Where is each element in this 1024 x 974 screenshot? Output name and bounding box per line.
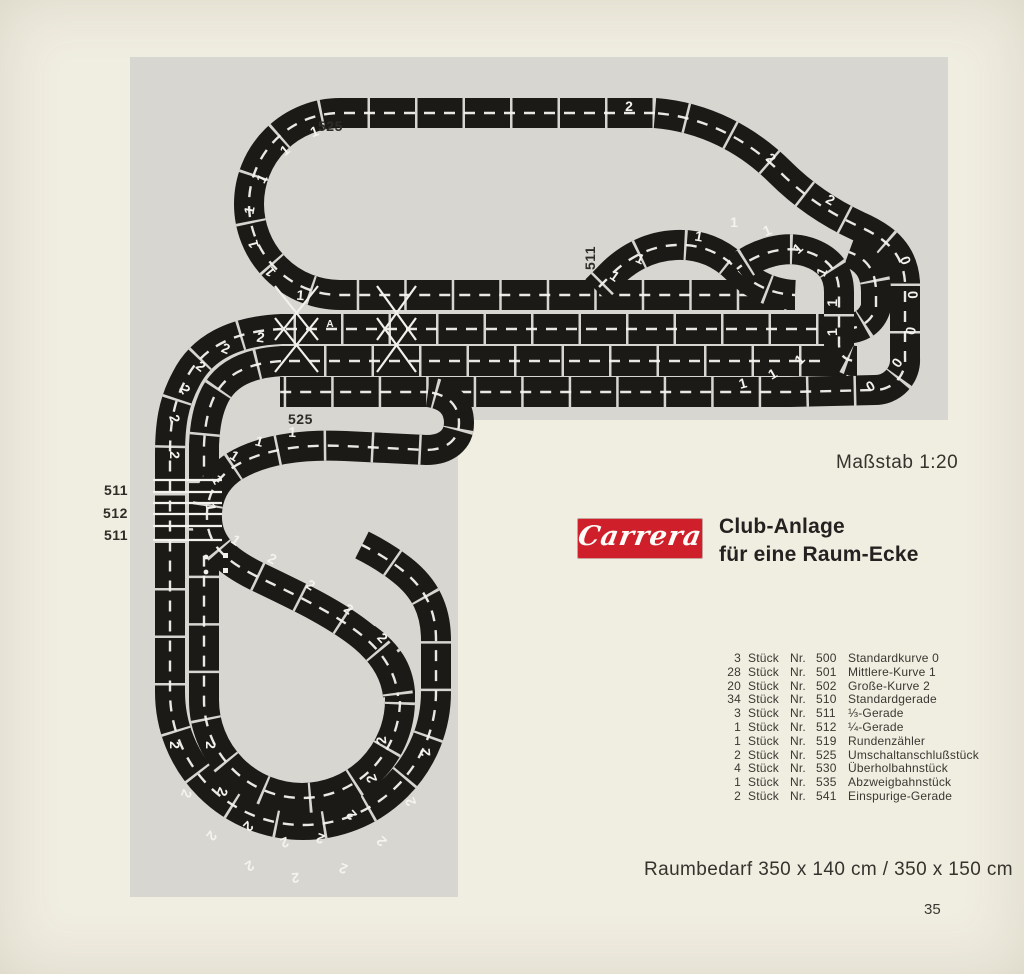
part-number: 519 [816, 735, 848, 749]
part-unit-label: Stück [748, 735, 790, 749]
scale-note: Maßstab 1:20 [836, 452, 986, 474]
part-unit-label: Stück [748, 666, 790, 680]
parts-list-row: 3StückNr.500Standardkurve 0 [719, 652, 979, 666]
part-nr-label: Nr. [790, 790, 816, 804]
part-name: Große-Kurve 2 [848, 680, 930, 694]
parts-list-row: 20StückNr.502Große-Kurve 2 [719, 680, 979, 694]
part-qty: 4 [719, 762, 741, 776]
part-number: 510 [816, 693, 848, 707]
page-number: 35 [924, 901, 941, 918]
part-qty: 20 [719, 680, 741, 694]
photo-label-525: 525 [288, 411, 313, 427]
part-qty: 1 [719, 735, 741, 749]
part-nr-label: Nr. [790, 707, 816, 721]
part-qty: 28 [719, 666, 741, 680]
part-name: Umschaltanschlußstück [848, 749, 979, 763]
svg-text:1: 1 [730, 214, 738, 230]
part-unit-label: Stück [748, 790, 790, 804]
svg-text:2: 2 [291, 870, 300, 887]
part-name: Standardkurve 0 [848, 652, 939, 666]
part-nr-label: Nr. [790, 762, 816, 776]
photo-label-525: 525 [318, 118, 343, 134]
part-unit-label: Stück [748, 721, 790, 735]
part-unit-label: Stück [748, 776, 790, 790]
part-number: 525 [816, 749, 848, 763]
part-unit-label: Stück [748, 693, 790, 707]
part-number: 500 [816, 652, 848, 666]
parts-list-row: 34StückNr.510Standardgerade [719, 693, 979, 707]
part-unit-label: Stück [748, 749, 790, 763]
part-qty: 1 [719, 721, 741, 735]
part-number: 501 [816, 666, 848, 680]
part-nr-label: Nr. [790, 693, 816, 707]
parts-list-row: 2StückNr.525Umschaltanschlußstück [719, 749, 979, 763]
part-nr-label: Nr. [790, 721, 816, 735]
part-qty: 1 [719, 776, 741, 790]
part-name: Einspurige-Gerade [848, 790, 952, 804]
parts-list-row: 1StückNr.535Abzweigbahnstück [719, 776, 979, 790]
svg-text:2: 2 [417, 748, 434, 757]
part-number: 535 [816, 776, 848, 790]
catalog-page: 1111111222111111111111222222111111222200… [0, 0, 1024, 974]
svg-text:2: 2 [203, 741, 219, 749]
part-qty: 2 [719, 749, 741, 763]
part-qty: 2 [719, 790, 741, 804]
photo-label-511: 511 [104, 482, 128, 498]
part-nr-label: Nr. [790, 776, 816, 790]
brand-block: Carrera Club-Anlage für eine Raum-Ecke [578, 519, 919, 568]
part-name: ¼-Gerade [848, 721, 904, 735]
photo-label-511: 511 [582, 246, 598, 270]
svg-text:2: 2 [167, 741, 183, 749]
part-nr-label: Nr. [790, 652, 816, 666]
space-requirement: Raumbedarf 350 x 140 cm / 350 x 150 cm [644, 859, 1013, 881]
svg-text:2: 2 [373, 736, 390, 745]
parts-list-row: 3StückNr.511⅓-Gerade [719, 707, 979, 721]
part-qty: 3 [719, 707, 741, 721]
parts-list-row: 4StückNr.530Überholbahnstück [719, 762, 979, 776]
parts-list-row: 1StückNr.512¼-Gerade [719, 721, 979, 735]
parts-list: 3StückNr.500Standardkurve 028StückNr.501… [719, 652, 979, 804]
part-unit-label: Stück [748, 652, 790, 666]
layout-title-line1: Club-Anlage [719, 513, 919, 541]
part-unit-label: Stück [748, 762, 790, 776]
parts-list-row: 2StückNr.541Einspurige-Gerade [719, 790, 979, 804]
track-layout-photo: 1111111222111111111111222222111111222200… [0, 0, 1024, 974]
part-name: Abzweigbahnstück [848, 776, 951, 790]
part-number: 512 [816, 721, 848, 735]
part-name: ⅓-Gerade [848, 707, 904, 721]
photo-label-511: 511 [104, 527, 128, 543]
carrera-logo: Carrera [578, 519, 702, 558]
svg-text:2: 2 [625, 98, 633, 114]
part-qty: 3 [719, 652, 741, 666]
part-number: 511 [816, 707, 848, 721]
photo-label-512: 512 [103, 505, 128, 521]
part-name: Rundenzähler [848, 735, 925, 749]
part-name: Standardgerade [848, 693, 937, 707]
part-number: 541 [816, 790, 848, 804]
part-nr-label: Nr. [790, 749, 816, 763]
part-name: Überholbahnstück [848, 762, 948, 776]
part-qty: 34 [719, 693, 741, 707]
svg-text:2: 2 [167, 451, 183, 459]
svg-text:1: 1 [296, 287, 305, 304]
part-unit-label: Stück [748, 707, 790, 721]
parts-list-row: 28StückNr.501Mittlere-Kurve 1 [719, 666, 979, 680]
svg-text:1: 1 [824, 298, 840, 307]
parts-list-row: 1StückNr.519Rundenzähler [719, 735, 979, 749]
svg-text:1: 1 [824, 328, 840, 337]
svg-text:0: 0 [905, 291, 921, 300]
layout-title-line2: für eine Raum-Ecke [719, 541, 919, 569]
part-name: Mittlere-Kurve 1 [848, 666, 936, 680]
part-unit-label: Stück [748, 680, 790, 694]
part-number: 502 [816, 680, 848, 694]
layout-title: Club-Anlage für eine Raum-Ecke [719, 513, 919, 568]
carrera-logo-text: Carrera [576, 521, 705, 552]
part-nr-label: Nr. [790, 666, 816, 680]
part-nr-label: Nr. [790, 735, 816, 749]
svg-text:A: A [326, 319, 333, 330]
part-number: 530 [816, 762, 848, 776]
part-nr-label: Nr. [790, 680, 816, 694]
